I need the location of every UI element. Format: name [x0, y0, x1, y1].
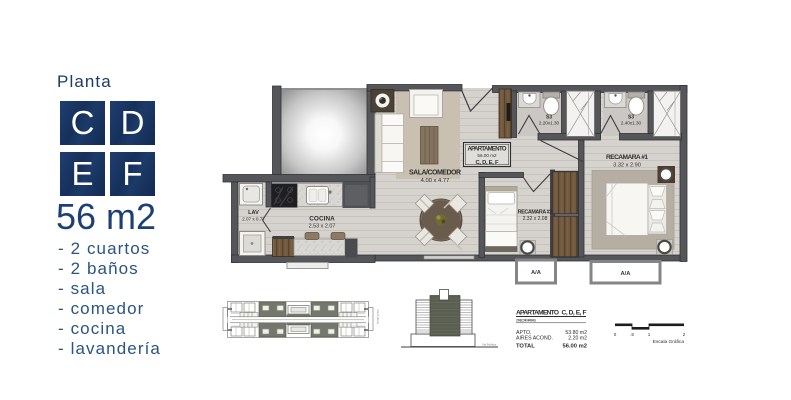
- svg-text:3.32 x 2.90: 3.32 x 2.90: [613, 163, 641, 169]
- svg-text:COCINA: COCINA: [309, 216, 335, 223]
- svg-text:SALA/COMEDOR: SALA/COMEDOR: [409, 170, 461, 177]
- svg-text:RECAMARA #2: RECAMARA #2: [518, 210, 553, 216]
- svg-text:APARTAMENTO: APARTAMENTO: [516, 310, 559, 317]
- svg-text:56.00 m2: 56.00 m2: [563, 344, 588, 350]
- svg-text:Via Publica: Via Publica: [376, 309, 380, 324]
- svg-text:4.00 x 4.77: 4.00 x 4.77: [421, 178, 450, 184]
- svg-text:2.07 x 0.77: 2.07 x 0.77: [242, 217, 265, 222]
- svg-text:56.00 m2: 56.00 m2: [477, 153, 497, 158]
- svg-text:A/A: A/A: [531, 270, 542, 276]
- svg-text:Escala Gráfica: Escala Gráfica: [653, 339, 685, 345]
- svg-text:LAV: LAV: [248, 210, 259, 216]
- svg-text:C, D, E, F: C, D, E, F: [562, 310, 587, 317]
- svg-text:AIRES ACOND.: AIRES ACOND.: [516, 336, 553, 342]
- svg-text:2: 2: [683, 332, 686, 337]
- svg-text:1: 1: [648, 332, 651, 337]
- svg-text:APARTAMENTO: APARTAMENTO: [468, 147, 507, 153]
- svg-text:Via Publica: Via Publica: [482, 343, 496, 347]
- svg-text:2.20x1.30: 2.20x1.30: [539, 121, 560, 126]
- svg-text:2 RECAMARAS: 2 RECAMARAS: [516, 318, 536, 322]
- svg-text:0: 0: [614, 332, 617, 337]
- svg-text:RECAMARA #1: RECAMARA #1: [606, 154, 648, 161]
- svg-text:2.20 m2: 2.20 m2: [568, 336, 587, 342]
- svg-text:A/A: A/A: [621, 271, 632, 277]
- svg-text:C, D, E, F: C, D, E, F: [476, 160, 499, 166]
- svg-text:2.53 x 2.07: 2.53 x 2.07: [309, 224, 336, 230]
- svg-text:2.32 x 2.08: 2.32 x 2.08: [523, 216, 548, 222]
- svg-text:TOTAL: TOTAL: [516, 344, 535, 350]
- svg-text:.5: .5: [630, 332, 634, 337]
- svg-text:2.40x1.30: 2.40x1.30: [621, 121, 642, 126]
